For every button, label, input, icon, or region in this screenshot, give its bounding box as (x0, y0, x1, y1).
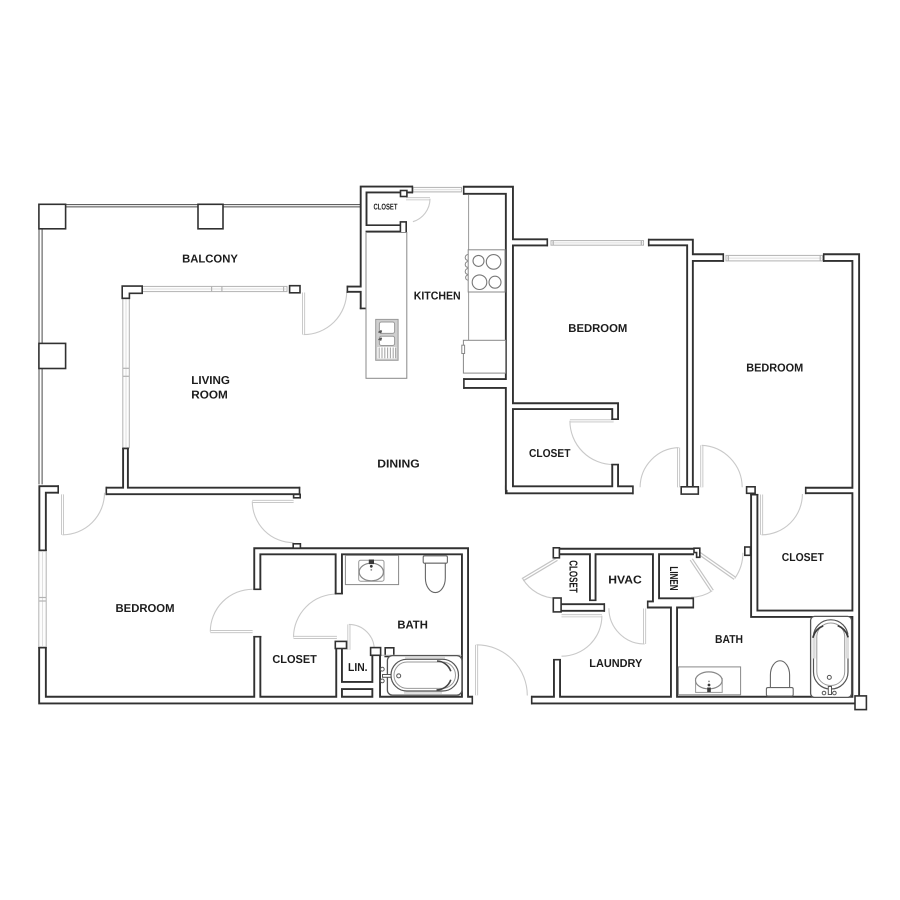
svg-text:CLOSET: CLOSET (272, 654, 317, 666)
svg-text:LINEN: LINEN (667, 566, 679, 590)
svg-text:CLOSET: CLOSET (566, 560, 578, 593)
svg-text:KITCHEN: KITCHEN (414, 291, 461, 303)
svg-text:DINING: DINING (377, 458, 420, 470)
svg-text:LIVING: LIVING (191, 375, 230, 387)
svg-text:CLOSET: CLOSET (529, 448, 571, 460)
svg-text:BEDROOM: BEDROOM (116, 603, 175, 615)
svg-text:LIN.: LIN. (348, 662, 368, 674)
svg-text:BEDROOM: BEDROOM (746, 362, 803, 374)
svg-text:ROOM: ROOM (191, 389, 228, 401)
svg-text:BATH: BATH (397, 619, 428, 631)
svg-text:HVAC: HVAC (608, 575, 642, 587)
svg-text:BALCONY: BALCONY (182, 254, 238, 266)
svg-text:BATH: BATH (715, 634, 743, 646)
svg-text:CLOSET: CLOSET (374, 202, 399, 212)
svg-text:BEDROOM: BEDROOM (568, 323, 627, 335)
svg-text:CLOSET: CLOSET (782, 552, 824, 564)
svg-text:LAUNDRY: LAUNDRY (589, 658, 642, 670)
